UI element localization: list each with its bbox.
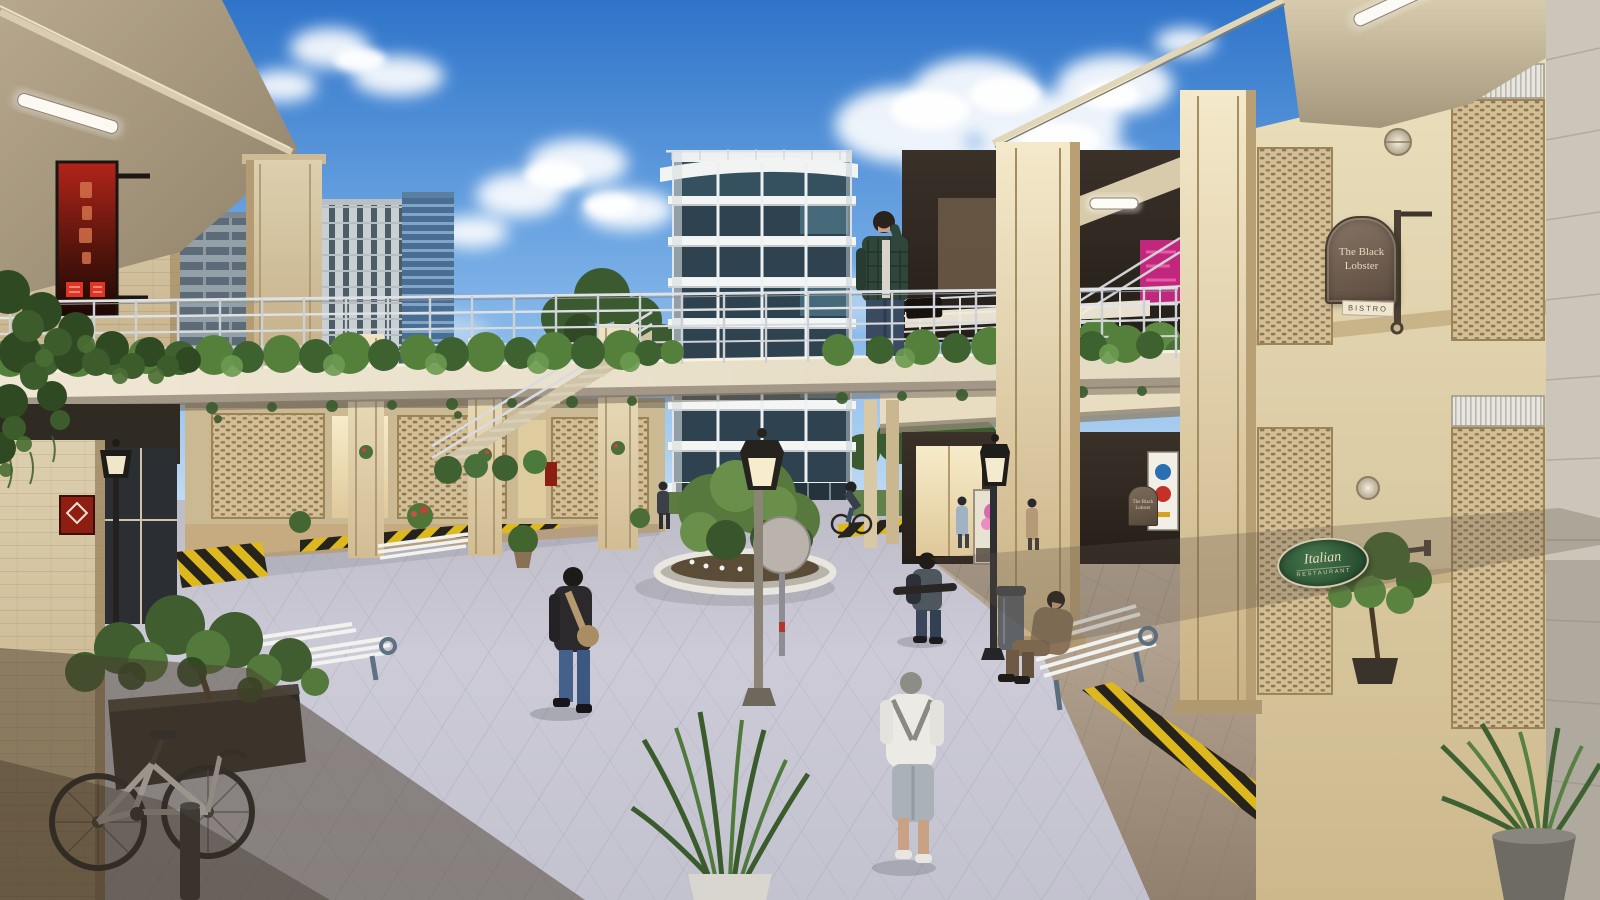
bistro-sign-line2: Lobster [1345, 260, 1379, 274]
bistro-sign-line1: The Black [1339, 246, 1385, 260]
architectural-render: The Black Lobster BISTRO The Black Lobst… [0, 0, 1600, 900]
bistro-tagline: BISTRO [1348, 303, 1388, 313]
italian-sign-script: Italian [1303, 549, 1342, 568]
small-red-sign [60, 496, 94, 534]
bistro-hanging-sign: The Black Lobster [1325, 216, 1398, 304]
bistro-tagline-plaque: BISTRO [1342, 300, 1394, 317]
upper-light-bar [1086, 194, 1142, 213]
mesh-shopfronts [212, 414, 648, 518]
wall-sconce-lower [1357, 477, 1379, 499]
bistro-pillar-sign: The Black Lobster [1128, 486, 1158, 526]
scene-drawing [0, 0, 1600, 900]
big-column-2 [1174, 90, 1262, 714]
